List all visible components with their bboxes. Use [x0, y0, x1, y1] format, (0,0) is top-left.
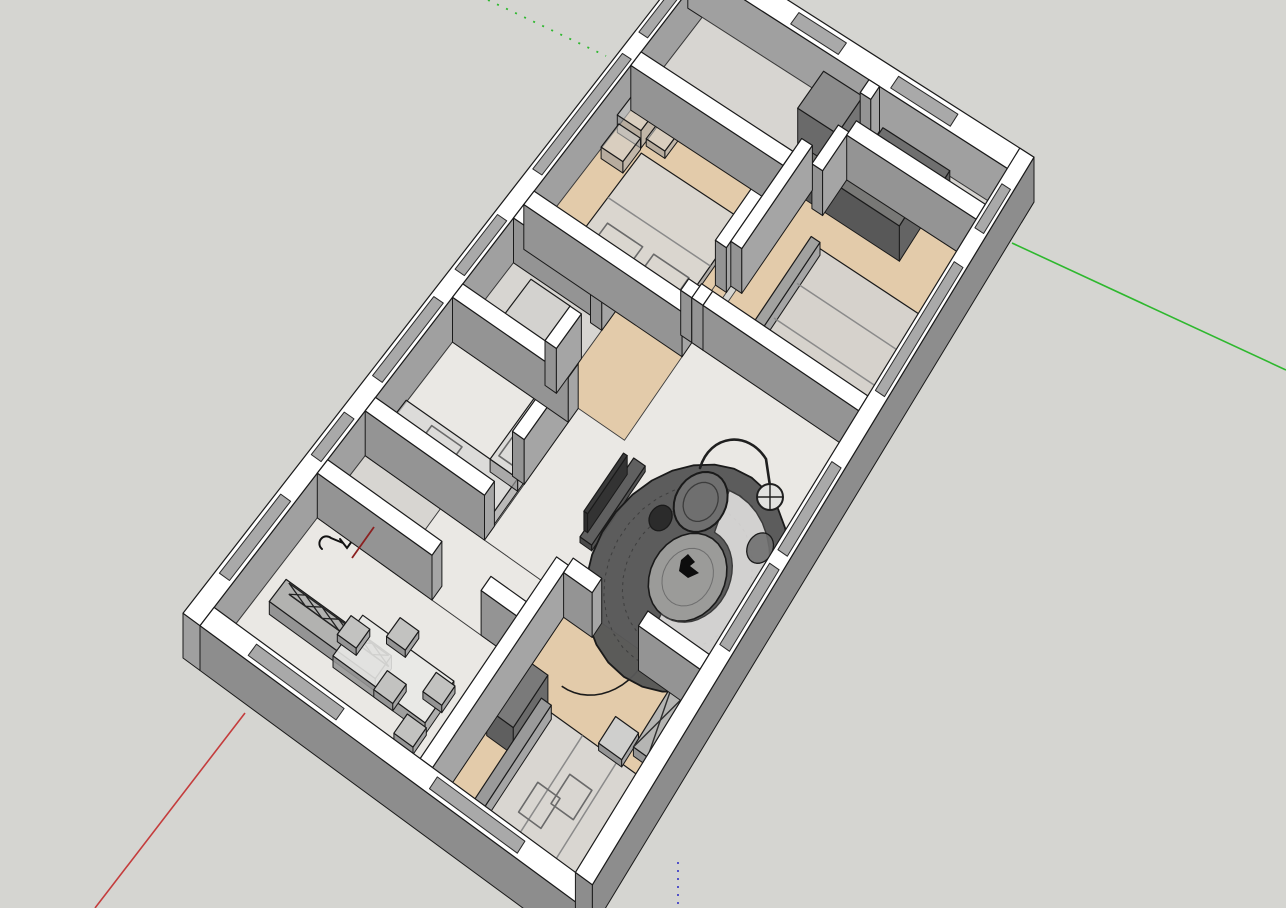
- floor-lamp-shade[interactable]: [757, 484, 783, 510]
- axis-green-dashed: [488, 0, 606, 56]
- model-scene[interactable]: [0, 0, 1286, 908]
- axis-red-solid: [95, 713, 245, 908]
- viewport-3d[interactable]: [0, 0, 1286, 908]
- axis-green-solid: [1012, 243, 1286, 370]
